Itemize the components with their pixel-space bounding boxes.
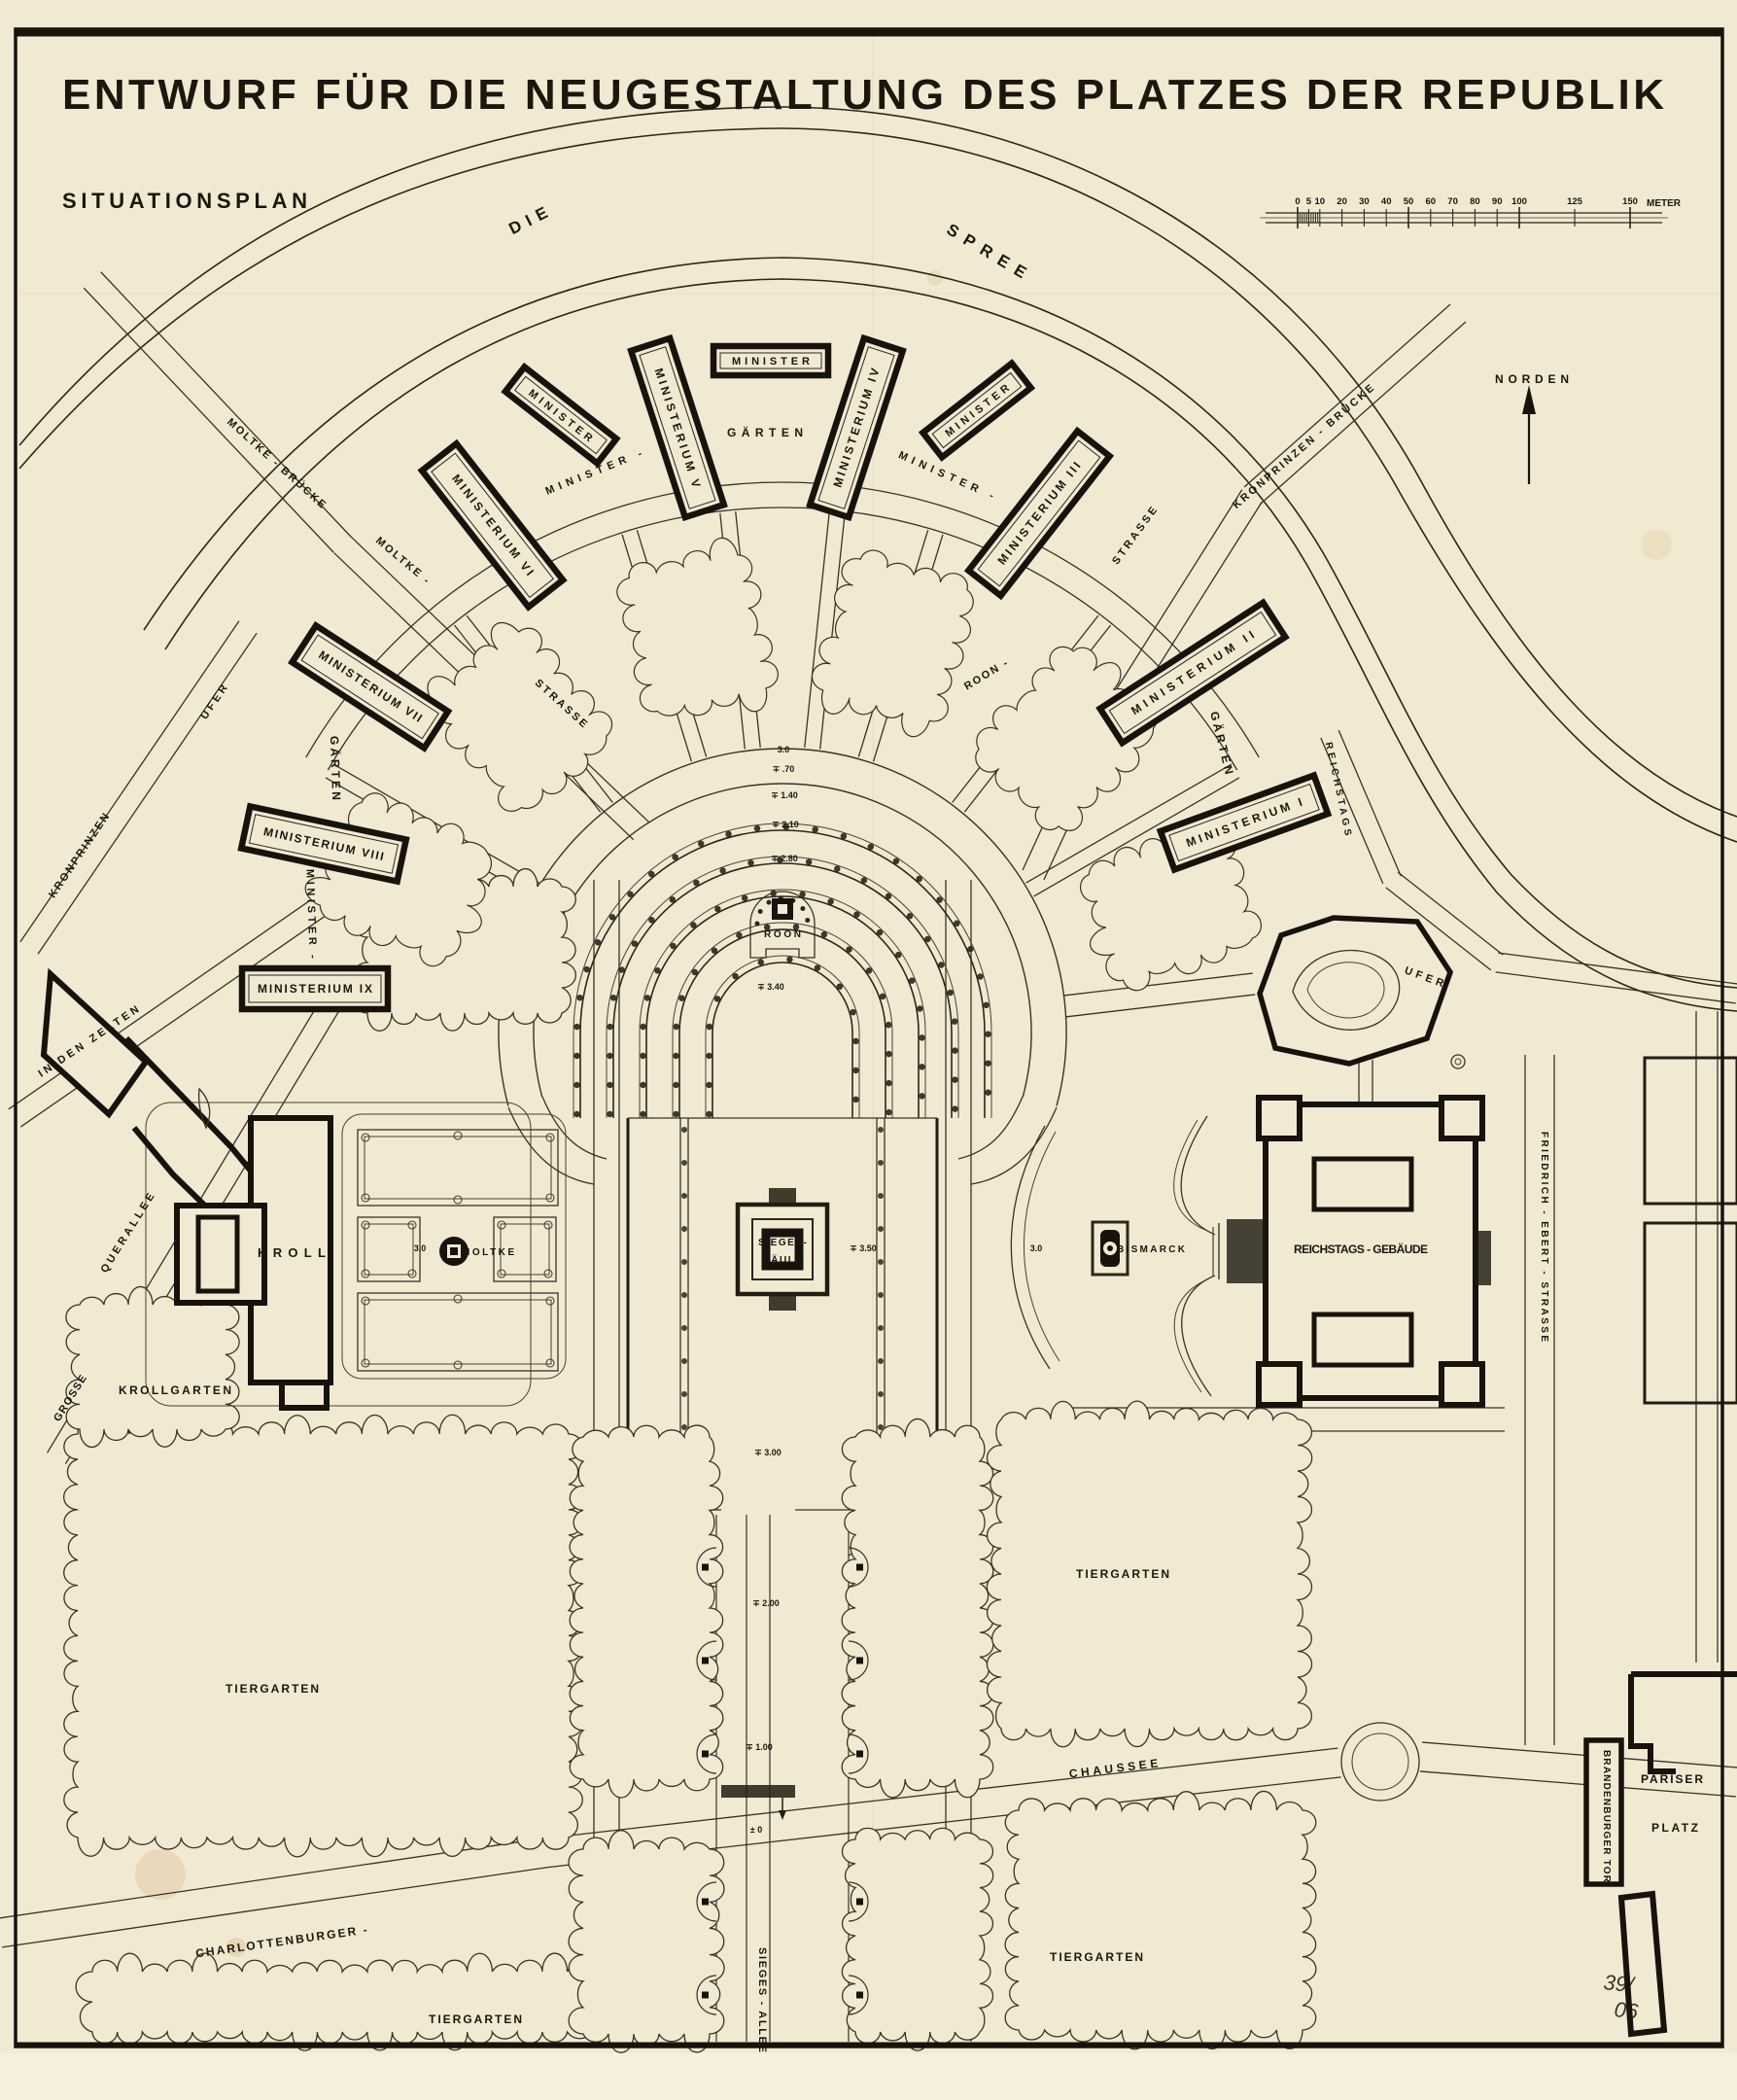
tree-parcel [66, 1286, 239, 1447]
scale-tick-label: 125 [1567, 196, 1583, 207]
statue-base [856, 1658, 863, 1664]
paper-stain [1641, 529, 1672, 560]
map-svg: MINISTERIUM IX MINISTERIUM VIII MINISTER… [0, 0, 1737, 2100]
elevation-mark: 3.0 [414, 1243, 427, 1253]
elevation-mark: ∓ 2.10 [772, 820, 799, 829]
statue-base [702, 1751, 709, 1758]
elevation-mark: 3.0 [778, 745, 790, 754]
tree-parcel [76, 1953, 634, 2050]
elevation-mark: ∓ 3.50 [850, 1243, 877, 1253]
label-tiergarten-east: TIERGARTEN [1076, 1567, 1169, 1581]
label-friedrich-ebert: FRIEDRICH - EBERT - STRASSE [1539, 1132, 1549, 1342]
elevation-mark: ∓ 3.00 [754, 1448, 782, 1457]
scale-tick-label: 5 [1306, 196, 1312, 207]
building-ministerium-9: MINISTERIUM IX [242, 968, 388, 1009]
elevation-mark: ∓ .70 [773, 764, 795, 774]
scale-tick-label: 10 [1315, 196, 1326, 207]
tree-parcel [842, 1828, 992, 2050]
scale-tick-label: 90 [1492, 196, 1503, 207]
elevation-mark: 3.0 [1030, 1243, 1043, 1253]
tree-parcel [1005, 1791, 1316, 2048]
scale-tick-label: 100 [1511, 196, 1527, 207]
pencil-note-b: 06 [1613, 1997, 1640, 2024]
tree-parcel [569, 1831, 724, 2052]
plan-sheet: MINISTERIUM IX MINISTERIUM VIII MINISTER… [0, 0, 1737, 2100]
statue-base [856, 1992, 863, 1999]
scale-tick-label: 0 [1295, 196, 1300, 207]
statue-base [856, 1751, 863, 1758]
tree-parcel [842, 1418, 993, 1798]
statue-base [856, 1564, 863, 1571]
scale-unit: METER [1647, 198, 1682, 209]
label-pariser: PARISER [1641, 1772, 1703, 1786]
page-title: ENTWURF FÜR DIE NEUGESTALTUNG DES PLATZE… [62, 71, 1666, 119]
label-tiergarten-west: TIERGARTEN [226, 1682, 319, 1696]
label-bismarck: BISMARCK [1117, 1244, 1186, 1255]
statue-base [702, 1658, 709, 1664]
scale-tick-label: 20 [1337, 196, 1347, 207]
scale-tick-label: 40 [1381, 196, 1392, 207]
elevation-mark: ∓ 3.40 [757, 982, 784, 992]
elevation-mark: ± 0 [750, 1825, 762, 1835]
label-tiergarten-south-east: TIERGARTEN [1050, 1950, 1143, 1964]
elevation-mark: ∓ 2.00 [752, 1598, 780, 1608]
paper-stain [927, 270, 943, 286]
scale-tick-label: 150 [1622, 196, 1638, 207]
scale-tick-label: 60 [1426, 196, 1437, 207]
label-brandenburger-tor: BRANDENBURGER TOR [1601, 1750, 1612, 1883]
statue-base [702, 1899, 709, 1906]
tree-parcel [570, 1425, 723, 1798]
label-platz: PLATZ [1651, 1821, 1698, 1835]
siegessaeule-monument [738, 1188, 827, 1311]
elevation-mark: ∓ 1.00 [746, 1742, 773, 1752]
label-reichstag: REICHSTAGS - GEBÄUDE [1294, 1242, 1428, 1256]
label-siegessaeule-1: SIEGES- [758, 1238, 807, 1248]
scale-tick-label: 80 [1470, 196, 1480, 207]
label-tiergarten-south-west: TIERGARTEN [429, 2012, 522, 2026]
elevation-mark: ∓ 1.40 [771, 790, 798, 800]
label-siegessaeule-2: SÄULE [763, 1253, 802, 1266]
label-ministerium-9: MINISTERIUM IX [258, 982, 372, 996]
tree-parcel [987, 1401, 1311, 1747]
scale-tick-label: 30 [1359, 196, 1370, 207]
statue-base [702, 1992, 709, 1999]
scale-tick-label: 70 [1447, 196, 1458, 207]
pencil-note-a: 39/ [1602, 1970, 1636, 1997]
tree-parcel [64, 1415, 583, 1857]
elevation-mark: ∓ 2.80 [771, 854, 798, 863]
statue-base [856, 1899, 863, 1906]
statue-base [702, 1564, 709, 1571]
paper-margin-bottom [0, 2053, 1737, 2100]
building-minister-north: MINISTER [713, 346, 828, 375]
scale-tick-label: 50 [1404, 196, 1414, 207]
label-krollgarten: KROLLGARTEN [119, 1383, 231, 1397]
